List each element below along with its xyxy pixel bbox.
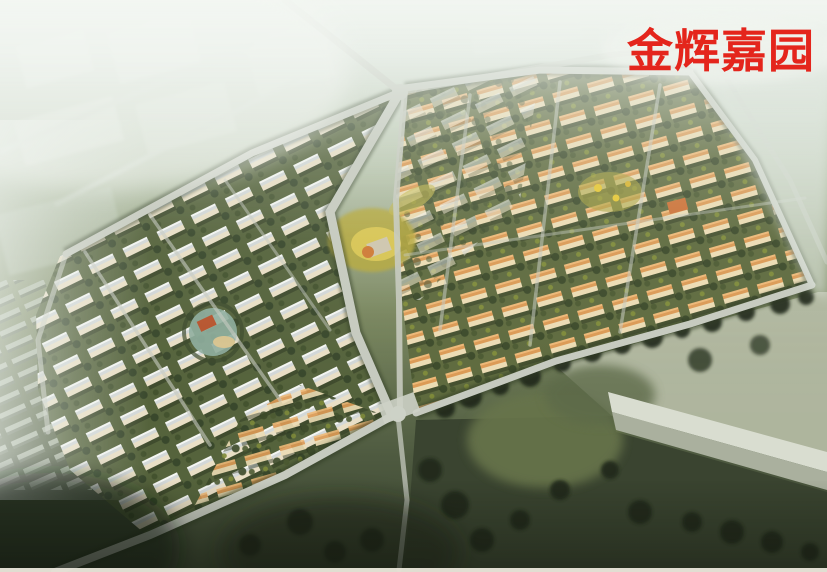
tree [601,461,619,479]
project-title: 金辉嘉园 [602,16,827,84]
tree [418,458,442,482]
image-bottom-border [0,568,827,572]
aerial-rendering: 金辉嘉园 [0,0,827,572]
masterplan-scene: 金辉嘉园 [0,0,827,572]
vignette-bottom [0,480,827,572]
project-title-watermark: 金辉嘉园 [626,24,815,78]
